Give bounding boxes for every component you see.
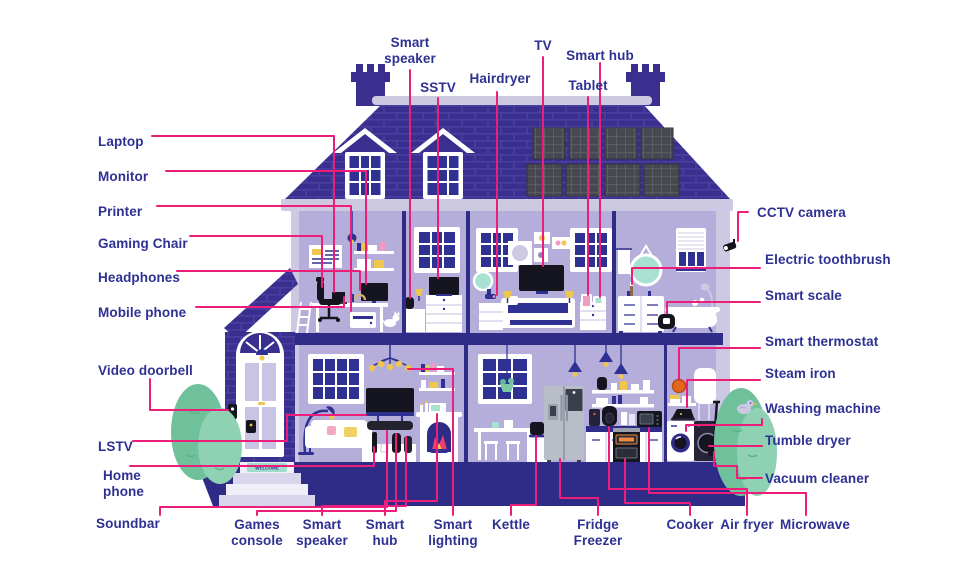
label-smart-speaker-bottom: Smart speaker: [292, 517, 352, 549]
label-washing-machine: Washing machine: [765, 401, 881, 417]
microwave-device: [637, 411, 662, 427]
label-kettle: Kettle: [486, 517, 536, 533]
fridge-freezer: [544, 386, 584, 463]
label-smart-hub-top: Smart hub: [555, 48, 645, 64]
label-electric-toothbrush: Electric toothbrush: [765, 252, 891, 268]
label-cctv-camera: CCTV camera: [757, 205, 846, 221]
floor-band: [291, 333, 723, 345]
label-steam-iron: Steam iron: [765, 366, 836, 382]
soundbar-device: [367, 421, 413, 430]
label-sstv: SSTV: [408, 80, 468, 96]
label-fridge-freezer: Fridge Freezer: [568, 517, 628, 549]
top-divider-1: [402, 211, 406, 333]
label-smart-speaker-top: Smart speaker: [375, 35, 445, 67]
label-cooker: Cooker: [660, 517, 720, 533]
leader-cctv-camera: [738, 212, 748, 241]
label-tv: TV: [528, 38, 558, 54]
washing-machine-device: [667, 421, 694, 461]
round-mirror: [474, 272, 492, 290]
smart-lock: [246, 420, 256, 433]
smart-hub-device-2: [429, 403, 446, 413]
label-gaming-chair: Gaming Chair: [98, 236, 188, 252]
smart-scale-device: [658, 314, 675, 329]
label-laptop: Laptop: [98, 134, 144, 150]
bed: [501, 296, 575, 328]
cooker-device: [613, 428, 640, 462]
bedroom-tv: [519, 265, 564, 294]
coffee-machine: [589, 409, 600, 426]
label-headphones: Headphones: [98, 270, 180, 286]
label-printer: Printer: [98, 204, 142, 220]
label-microwave: Microwave: [775, 517, 855, 533]
label-monitor: Monitor: [98, 169, 148, 185]
label-vacuum-cleaner: Vacuum cleaner: [765, 471, 869, 487]
vanity-sink: [618, 291, 664, 335]
label-soundbar: Soundbar: [96, 516, 160, 532]
air-fryer-device: [602, 406, 617, 426]
top-divider-2: [466, 211, 470, 333]
printer: [350, 312, 376, 328]
smart-home-diagram: WELCOME: [0, 0, 976, 585]
top-divider-3: [612, 211, 616, 333]
kitchen-speaker-device: [597, 377, 607, 390]
label-games-console: Games console: [227, 517, 287, 549]
smart-thermostat-device: [673, 380, 686, 393]
label-air-fryer: Air fryer: [716, 517, 778, 533]
label-mobile-phone: Mobile phone: [98, 305, 186, 321]
label-hairdryer: Hairdryer: [460, 71, 540, 87]
ground-divider-1: [464, 345, 468, 462]
label-home-phone: Home phone: [103, 468, 159, 500]
label-smart-scale: Smart scale: [765, 288, 842, 304]
label-smart-hub-bottom: Smart hub: [362, 517, 408, 549]
label-smart-lighting: Smart lighting: [423, 517, 483, 549]
ground-divider-2: [664, 345, 667, 462]
blind-window: [676, 228, 706, 272]
label-tablet: Tablet: [558, 78, 618, 94]
label-smart-thermostat: Smart thermostat: [765, 334, 878, 350]
label-video-doorbell: Video doorbell: [98, 363, 193, 379]
label-tumble-dryer: Tumble dryer: [765, 433, 851, 449]
tablet-device: [581, 294, 592, 308]
label-lstv: LSTV: [98, 439, 133, 455]
sstv: [429, 277, 459, 296]
